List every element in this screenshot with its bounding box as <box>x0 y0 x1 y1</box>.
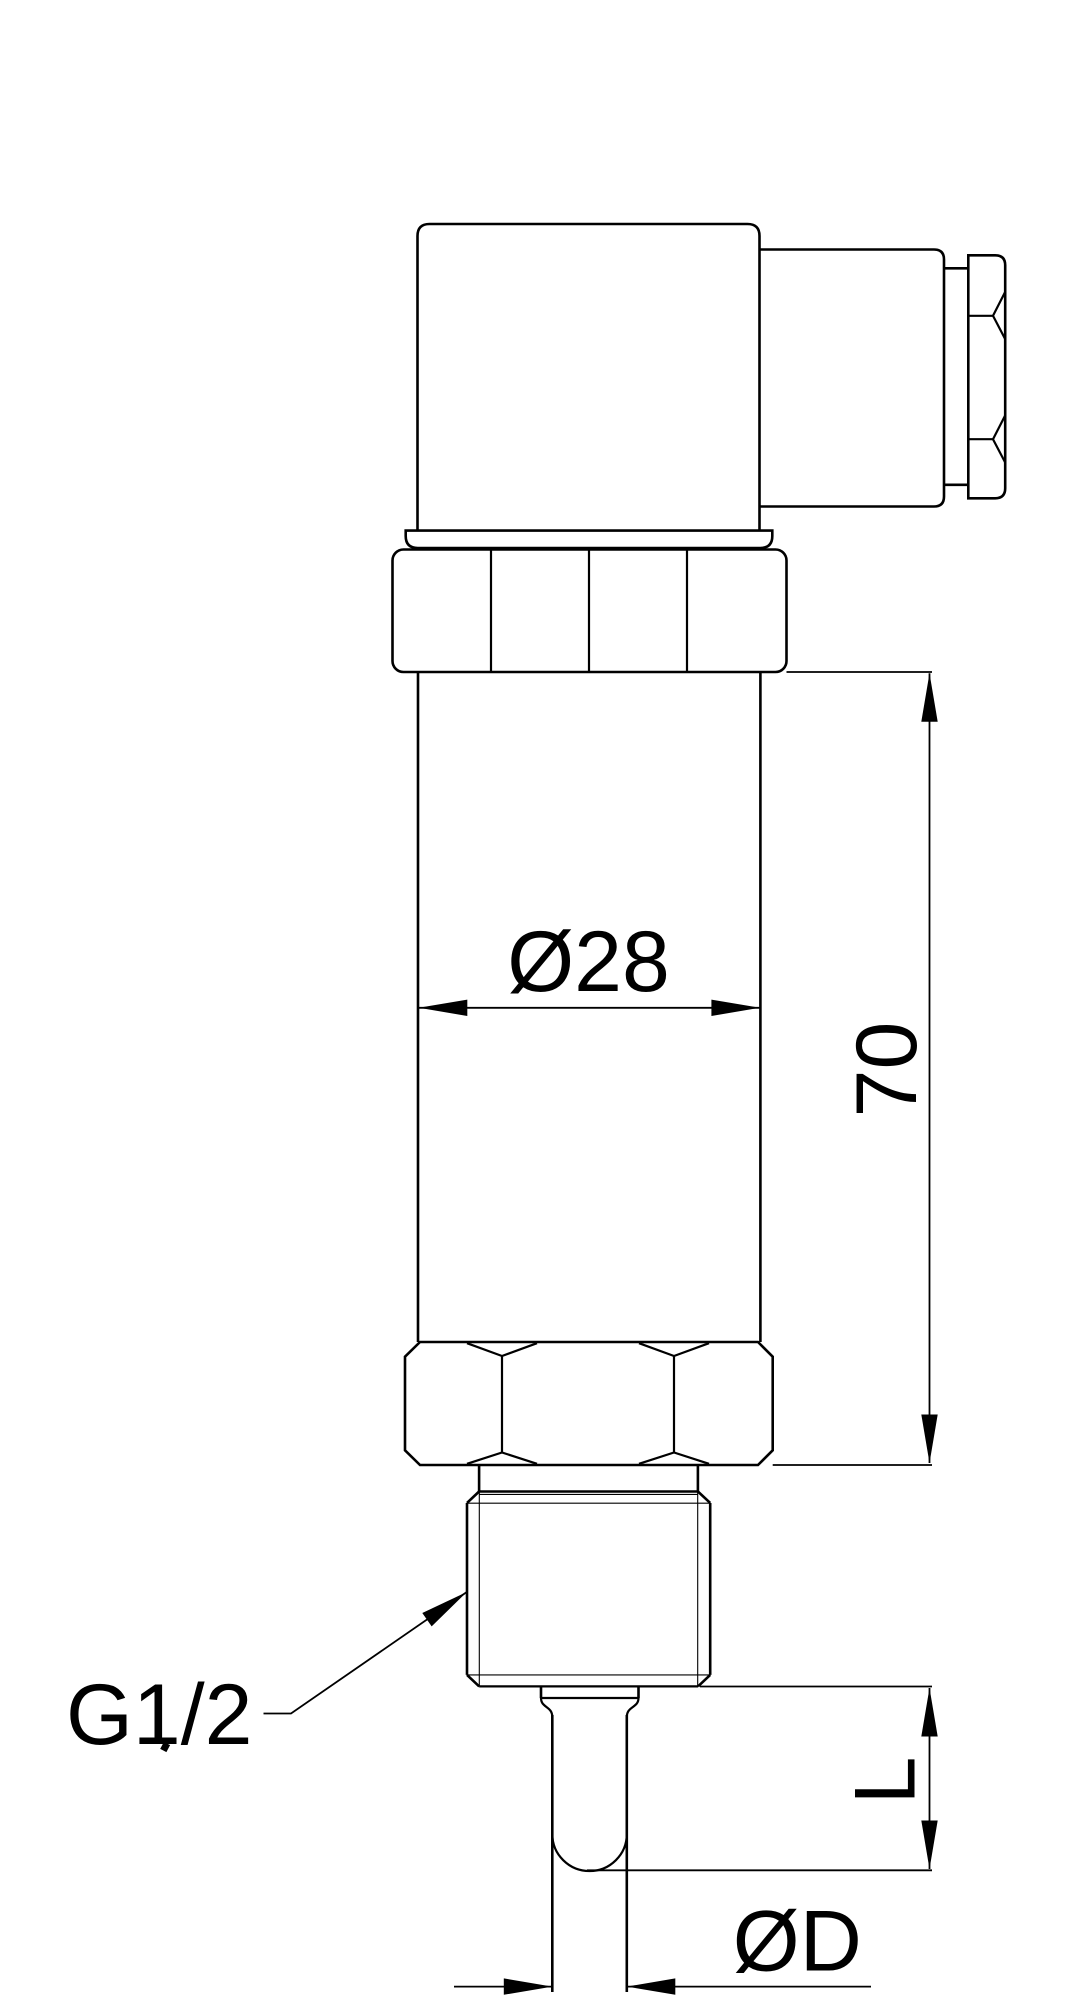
svg-text:70: 70 <box>839 1022 935 1118</box>
svg-text:Ø28: Ø28 <box>507 914 670 1010</box>
svg-text:L: L <box>838 1756 934 1804</box>
svg-text:ØD: ØD <box>733 1894 862 1990</box>
svg-text:G1/2: G1/2 <box>66 1667 252 1763</box>
